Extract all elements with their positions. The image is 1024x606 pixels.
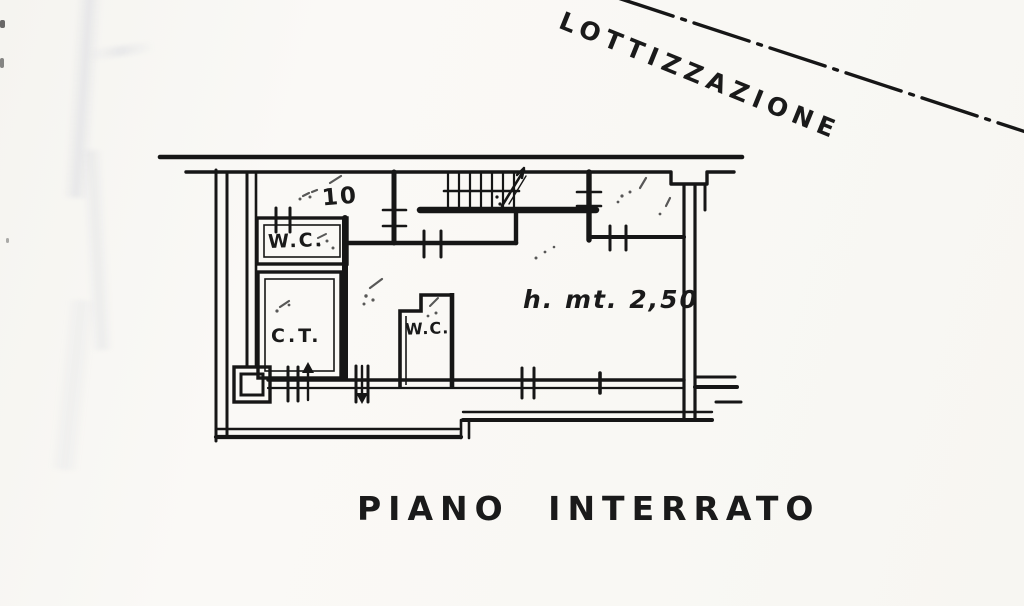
ct-room-label: C.T.	[271, 325, 321, 347]
plan-caption: PIANO INTERRATO	[357, 489, 820, 528]
scanned-plan-page: LOTTIZZAZIONE 10 W.C. C.T. W.C. h. mt. 2…	[0, 0, 1024, 606]
wc-upper-label: W.C.	[268, 229, 325, 253]
plan-interior-walls	[247, 172, 684, 388]
chimney-box	[234, 367, 270, 402]
wc-lower-room	[400, 293, 452, 387]
staircase	[444, 168, 526, 207]
wc-lower-label: W.C.	[405, 318, 450, 339]
section-arrows	[302, 362, 368, 404]
ceiling-height-label: h. mt. 2,50	[523, 285, 699, 314]
room-number-label: 10	[321, 182, 359, 211]
